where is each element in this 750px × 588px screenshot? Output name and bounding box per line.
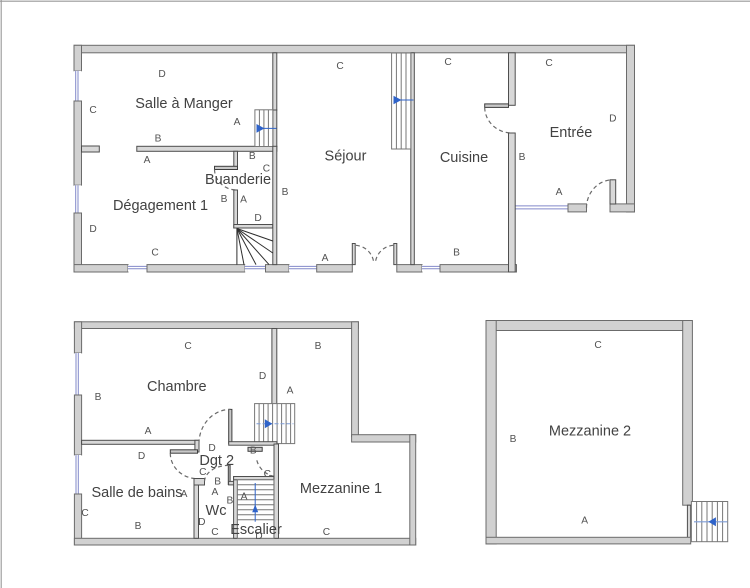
svg-text:Buanderie: Buanderie [205,172,271,188]
svg-text:C: C [263,164,270,175]
svg-text:C: C [264,469,271,480]
svg-text:C: C [184,341,191,352]
svg-text:Dégagement 1: Dégagement 1 [113,198,208,214]
svg-text:A: A [234,117,241,128]
svg-text:A: A [556,187,563,198]
svg-text:B: B [155,134,162,145]
svg-text:C: C [199,467,206,478]
svg-text:C: C [545,58,552,69]
svg-text:A: A [581,516,588,527]
svg-text:D: D [255,531,262,542]
svg-text:D: D [138,451,145,462]
svg-text:A: A [241,492,248,503]
svg-text:A: A [240,195,247,206]
svg-text:Wc: Wc [206,503,227,519]
svg-text:D: D [259,371,266,382]
svg-text:Salle à Manger: Salle à Manger [135,96,233,112]
svg-text:C: C [81,508,88,519]
svg-text:B: B [519,152,526,163]
svg-text:B: B [214,477,221,488]
svg-text:B: B [315,341,322,352]
svg-text:D: D [158,69,165,80]
svg-text:D: D [208,443,215,454]
svg-text:B: B [510,434,517,445]
svg-text:D: D [198,517,205,528]
svg-text:C: C [594,340,601,351]
svg-text:B: B [221,194,228,205]
svg-text:A: A [322,253,329,264]
svg-text:A: A [144,155,151,166]
svg-text:Chambre: Chambre [147,379,207,395]
svg-text:A: A [287,386,294,397]
svg-text:C: C [211,527,218,538]
svg-text:D: D [609,114,616,125]
svg-text:Séjour: Séjour [325,149,367,165]
svg-text:Mezzanine 1: Mezzanine 1 [300,481,382,497]
svg-text:D: D [254,213,261,224]
svg-text:D: D [89,224,96,235]
svg-text:B: B [227,496,234,507]
svg-text:B: B [250,445,257,456]
svg-text:C: C [89,105,96,116]
svg-text:C: C [151,248,158,259]
svg-text:Salle de bains: Salle de bains [91,485,182,501]
svg-text:B: B [282,187,289,198]
svg-text:Mezzanine 2: Mezzanine 2 [549,424,631,440]
svg-text:C: C [336,61,343,72]
svg-text:A: A [212,487,219,498]
svg-text:B: B [249,151,256,162]
svg-text:Entrée: Entrée [550,125,593,141]
svg-text:B: B [95,392,102,403]
svg-text:A: A [181,489,188,500]
svg-text:B: B [135,521,142,532]
svg-text:C: C [444,57,451,68]
svg-text:Cuisine: Cuisine [440,150,488,166]
svg-text:A: A [145,426,152,437]
svg-text:B: B [453,248,460,259]
svg-text:C: C [323,527,330,538]
